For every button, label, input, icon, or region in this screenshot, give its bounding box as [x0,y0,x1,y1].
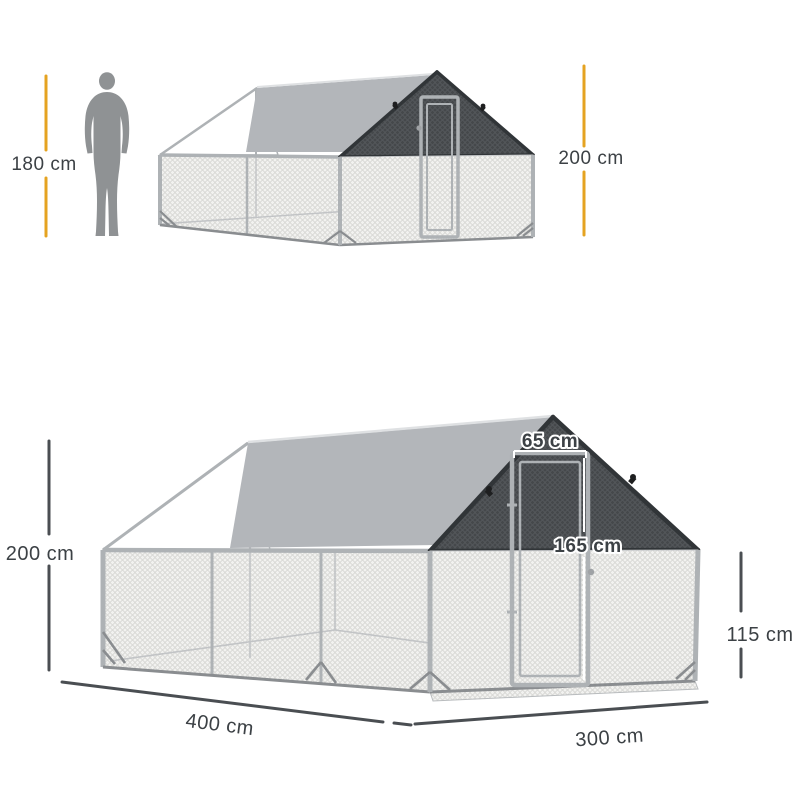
door-width-label: 65 cm [522,431,578,452]
human-height-label: 180 cm [11,154,76,175]
coop-illustration-small [160,72,533,245]
bottom-dimension-view: 200 cm 65 cm 165 cm 115 cm 400 cm 300 cm [6,416,794,751]
coop-height-label-small: 200 cm [558,148,623,169]
base-width-label: 300 cm [575,725,645,752]
diagram-canvas: 180 cm [0,0,800,800]
door-latch-small [416,125,421,130]
human-silhouette [85,72,129,236]
door-latch-large [588,569,594,575]
side-wall-height-label: 115 cm [726,624,793,646]
door-height-label: 165 cm [554,536,621,557]
top-size-comparison-view: 180 cm [11,66,623,245]
coop-height-label-large: 200 cm [6,543,75,565]
coop-illustration-large [103,416,698,701]
chicken-run-dimension-diagram: 180 cm [0,0,800,800]
base-depth-label: 400 cm [184,710,255,740]
